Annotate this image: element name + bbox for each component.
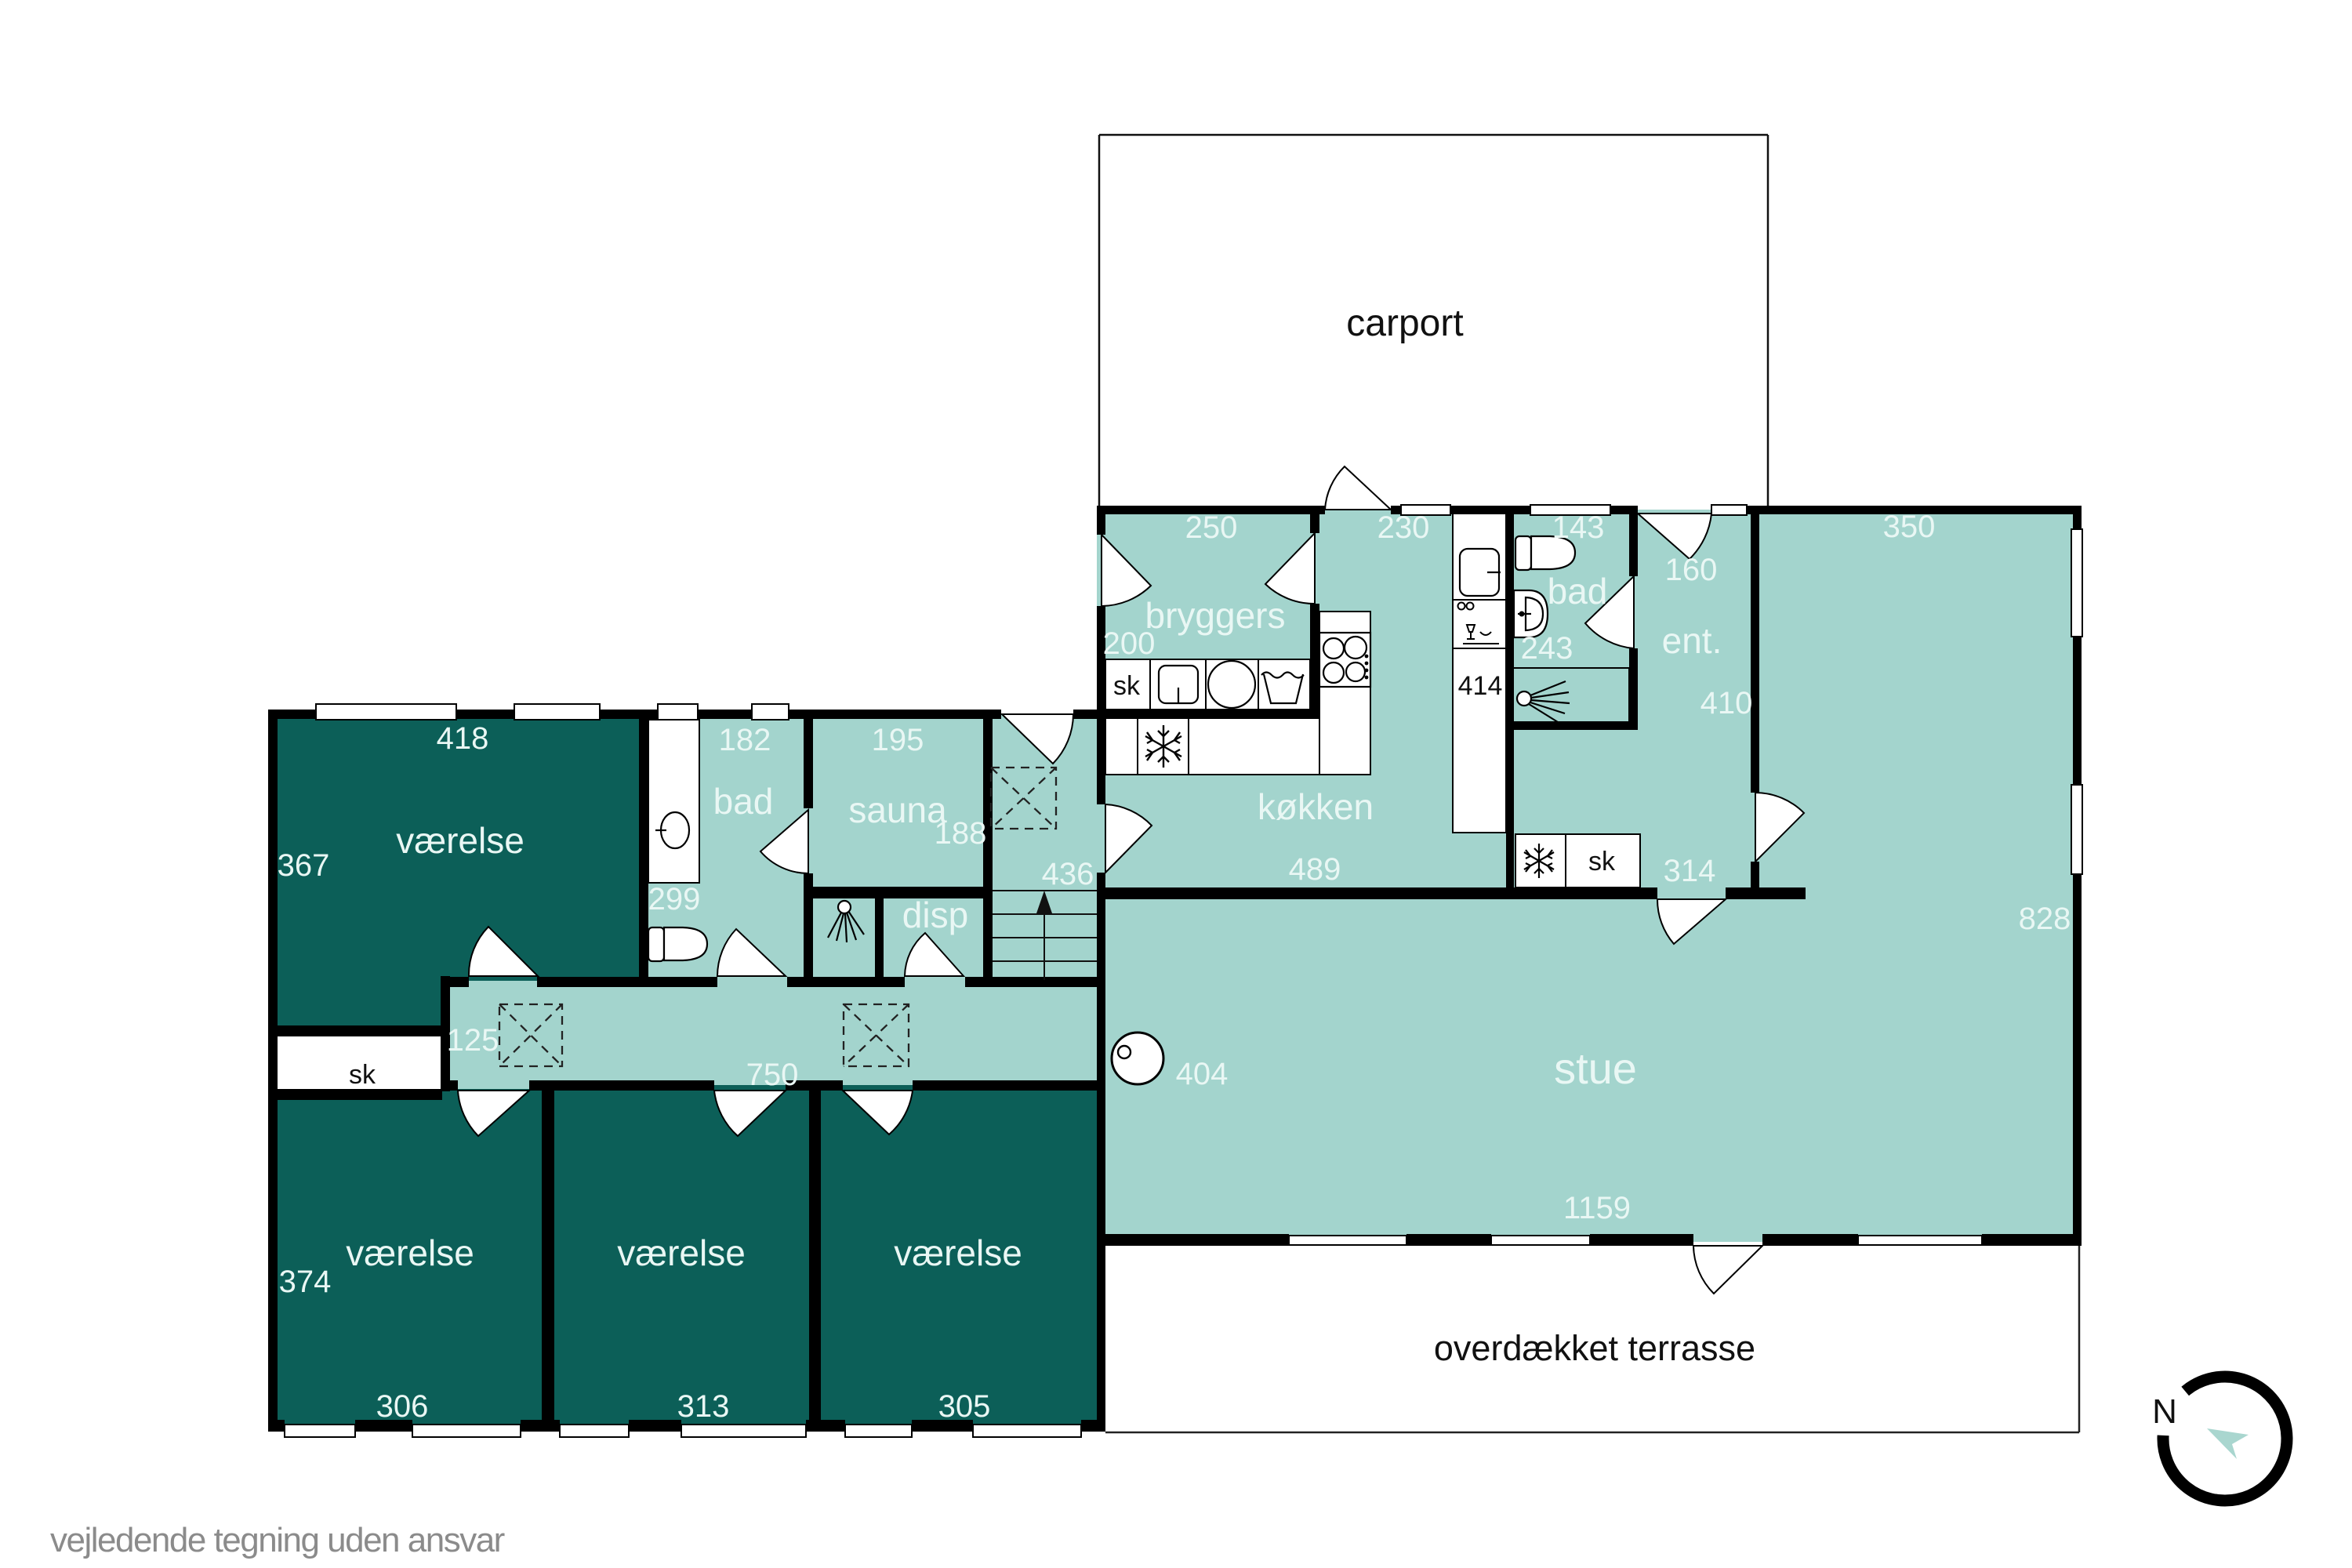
svg-text:750: 750 xyxy=(746,1058,799,1092)
svg-text:værelse: værelse xyxy=(617,1232,746,1273)
svg-text:bad: bad xyxy=(713,781,774,822)
svg-text:vejledende tegning uden ansvar: vejledende tegning uden ansvar xyxy=(50,1521,505,1559)
svg-text:489: 489 xyxy=(1289,852,1341,887)
svg-text:N: N xyxy=(2152,1392,2177,1431)
svg-text:230: 230 xyxy=(1377,510,1430,545)
svg-text:350: 350 xyxy=(1883,510,1936,544)
svg-text:disp: disp xyxy=(902,895,968,935)
svg-text:overdækket terrasse: overdækket terrasse xyxy=(1434,1328,1755,1368)
svg-text:182: 182 xyxy=(719,723,771,757)
svg-text:828: 828 xyxy=(2019,902,2071,936)
svg-text:værelse: værelse xyxy=(346,1232,474,1273)
svg-text:299: 299 xyxy=(648,882,701,916)
svg-text:sauna: sauna xyxy=(848,789,947,830)
svg-text:367: 367 xyxy=(278,848,330,883)
svg-text:374: 374 xyxy=(279,1265,332,1299)
svg-text:sk: sk xyxy=(1588,847,1616,877)
svg-text:køkken: køkken xyxy=(1258,786,1374,827)
svg-text:305: 305 xyxy=(938,1389,991,1424)
svg-text:125: 125 xyxy=(447,1023,499,1058)
svg-text:1159: 1159 xyxy=(1563,1191,1631,1225)
svg-text:404: 404 xyxy=(1176,1057,1229,1091)
svg-text:værelse: værelse xyxy=(396,820,524,861)
svg-text:414: 414 xyxy=(1458,671,1503,701)
svg-text:stue: stue xyxy=(1554,1044,1637,1093)
svg-text:143: 143 xyxy=(1552,510,1605,545)
svg-text:bryggers: bryggers xyxy=(1145,595,1286,636)
svg-text:160: 160 xyxy=(1665,553,1718,587)
svg-text:188: 188 xyxy=(935,816,987,851)
svg-text:313: 313 xyxy=(677,1389,730,1424)
svg-text:250: 250 xyxy=(1185,510,1238,545)
svg-text:sk: sk xyxy=(1113,671,1141,701)
svg-text:200: 200 xyxy=(1103,626,1156,661)
svg-text:418: 418 xyxy=(437,721,489,756)
svg-text:195: 195 xyxy=(872,723,924,757)
svg-text:ent.: ent. xyxy=(1662,620,1722,661)
svg-text:314: 314 xyxy=(1664,854,1716,888)
svg-text:306: 306 xyxy=(376,1389,429,1424)
svg-text:sk: sk xyxy=(349,1060,376,1090)
svg-text:værelse: værelse xyxy=(894,1232,1022,1273)
svg-text:410: 410 xyxy=(1700,686,1753,720)
svg-text:436: 436 xyxy=(1042,857,1094,891)
svg-text:carport: carport xyxy=(1346,303,1463,344)
svg-text:bad: bad xyxy=(1548,571,1608,612)
svg-text:243: 243 xyxy=(1521,631,1573,666)
